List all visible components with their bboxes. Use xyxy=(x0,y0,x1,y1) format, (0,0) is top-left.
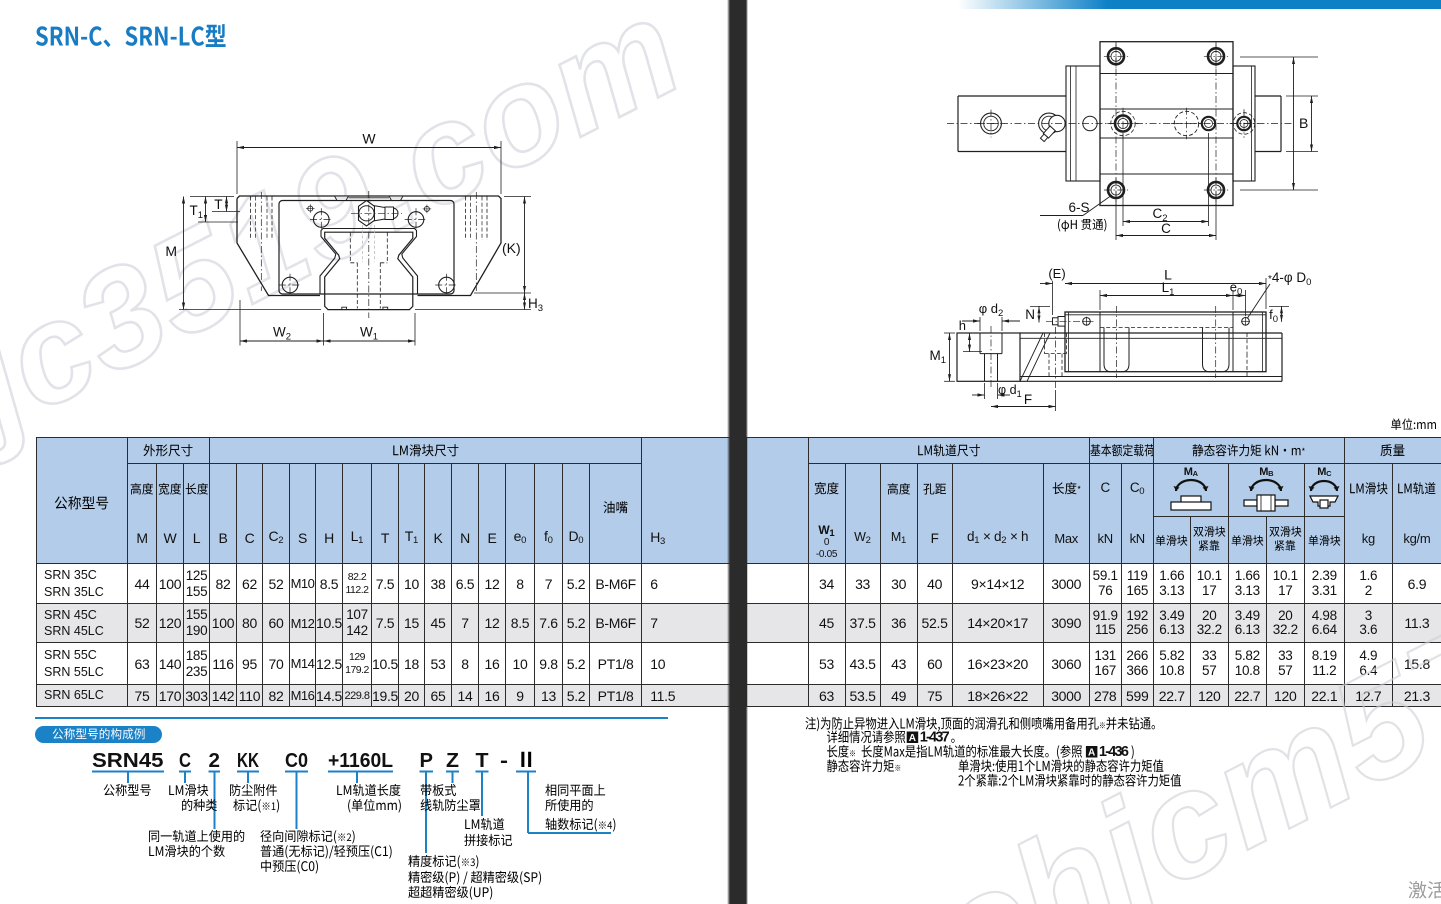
svg-text:φ d1: φ d1 xyxy=(998,383,1022,400)
svg-text:(E): (E) xyxy=(1048,266,1065,281)
svg-text:C: C xyxy=(1161,221,1171,236)
svg-text:N: N xyxy=(1025,307,1035,322)
svg-text:h: h xyxy=(959,318,966,333)
svg-text:B: B xyxy=(1299,115,1308,131)
svg-text:W2: W2 xyxy=(273,325,291,343)
svg-text:6-S: 6-S xyxy=(1068,200,1089,215)
svg-text:e0: e0 xyxy=(1230,280,1243,298)
svg-text:W1: W1 xyxy=(360,325,378,343)
svg-text:*4-φ D0: *4-φ D0 xyxy=(1268,270,1311,288)
svg-text:T1: T1 xyxy=(189,203,203,221)
svg-text:M: M xyxy=(165,243,177,259)
svg-text:H3: H3 xyxy=(528,296,543,314)
svg-text:φ d2: φ d2 xyxy=(979,301,1004,319)
svg-text:1-437: 1-437 xyxy=(920,730,950,746)
svg-text:F: F xyxy=(1024,392,1032,407)
svg-text:A: A xyxy=(909,733,916,744)
svg-text:(K): (K) xyxy=(502,240,521,256)
svg-text:A: A xyxy=(1088,748,1095,759)
svg-text:W: W xyxy=(362,131,376,147)
svg-text:f0: f0 xyxy=(1269,307,1278,325)
svg-text:T: T xyxy=(214,197,222,212)
svg-text:M1: M1 xyxy=(929,348,946,366)
svg-text:SRN45C2KKC0+1160LPZT-: SRN45C2KKC0+1160LPZT- xyxy=(92,749,508,772)
